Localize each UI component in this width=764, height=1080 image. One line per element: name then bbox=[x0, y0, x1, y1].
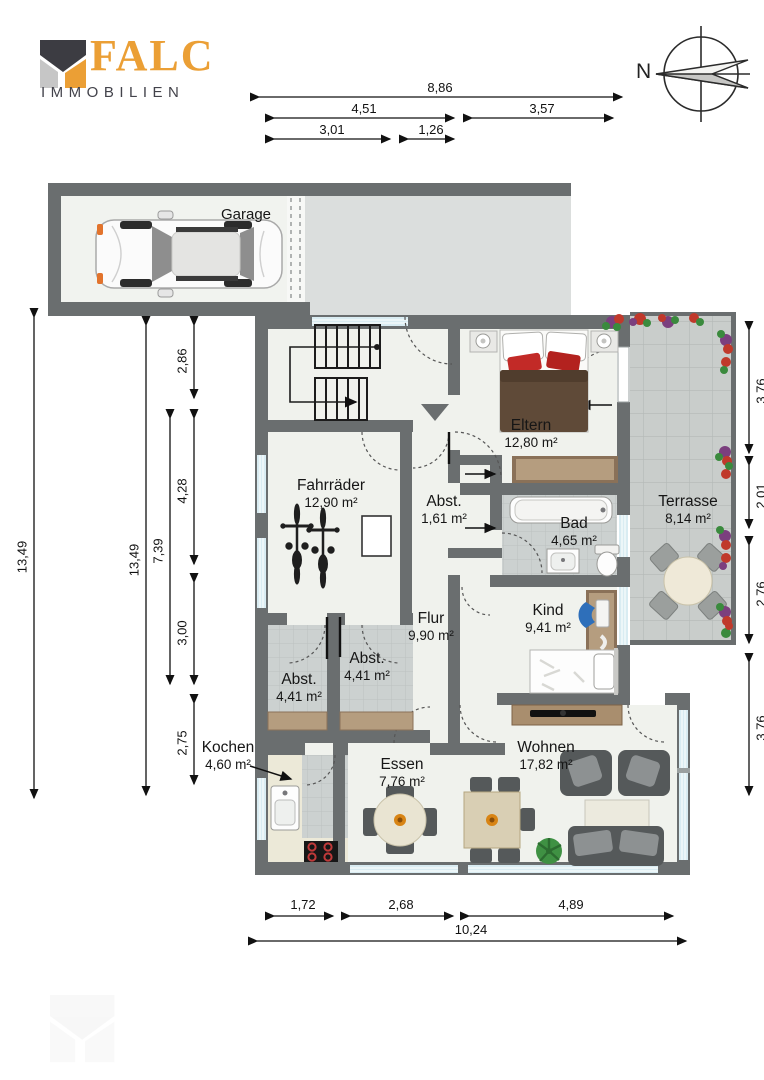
dim-left-sub4: 2,75 bbox=[175, 730, 190, 755]
abst-shelves bbox=[268, 712, 413, 730]
storage-box bbox=[362, 516, 391, 556]
window-kind bbox=[619, 587, 628, 645]
room-label-wohnen: Wohnen 17,82 m² bbox=[517, 739, 574, 772]
dim-top-sub1: 3,01 bbox=[319, 122, 344, 137]
window-wohnen-bottom bbox=[468, 865, 658, 873]
room-label-flur: Flur 9,90 m² bbox=[408, 610, 454, 643]
window-essen-bottom bbox=[350, 865, 458, 873]
dim-top-sub2: 1,26 bbox=[418, 122, 443, 137]
dim-left-sub2: 4,28 bbox=[175, 478, 190, 503]
room-label-terrasse: Terrasse 8,14 m² bbox=[658, 493, 717, 526]
dim-left-mid: 7,39 bbox=[151, 538, 166, 563]
compass-north-label: N bbox=[636, 60, 651, 84]
window-left-3 bbox=[257, 778, 266, 840]
room-label-abst-klein: Abst. 1,61 m² bbox=[421, 493, 467, 526]
dim-left-sub1: 2,86 bbox=[175, 348, 190, 373]
room-label-bad: Bad 4,65 m² bbox=[551, 515, 597, 548]
window-left-1 bbox=[257, 455, 266, 513]
dim-bottom-1: 1,72 bbox=[290, 897, 315, 912]
watermark bbox=[50, 995, 114, 1062]
plant-icon bbox=[536, 838, 562, 864]
car-icon bbox=[96, 211, 282, 297]
window-left-2 bbox=[257, 538, 266, 608]
dim-right-2: 2,01 bbox=[754, 483, 764, 508]
room-label-abst-rechts: Abst. 4,41 m² bbox=[344, 650, 390, 683]
dim-left-inner: 13,49 bbox=[127, 544, 142, 577]
room-label-kind: Kind 9,41 m² bbox=[525, 602, 571, 635]
dim-right-4: 3,76 bbox=[754, 715, 764, 740]
floorplan-page: FALC IMMOBILIEN N Garage Eltern 12,80 m²… bbox=[0, 0, 764, 1080]
room-label-kochen: Kochen 4,60 m² bbox=[202, 739, 255, 772]
dim-top-total: 8,86 bbox=[427, 80, 452, 95]
brand-logo-icon bbox=[40, 40, 86, 88]
room-label-eltern: Eltern 12,80 m² bbox=[504, 417, 557, 450]
dim-left-sub3: 3,00 bbox=[175, 620, 190, 645]
driveway-floor bbox=[287, 196, 571, 315]
dim-top-left: 4,51 bbox=[351, 101, 376, 116]
floorplan-drawing bbox=[0, 0, 764, 1080]
window-bad bbox=[619, 515, 628, 557]
brand-subtitle: IMMOBILIEN bbox=[41, 84, 184, 101]
dim-left-outer: 13,49 bbox=[15, 541, 30, 574]
room-label-fahrraeder: Fahrräder 12,90 m² bbox=[297, 477, 365, 510]
dim-right-1: 3,76 bbox=[754, 378, 764, 403]
dim-right-3: 2,76 bbox=[754, 581, 764, 606]
room-label-essen: Essen 7,76 m² bbox=[379, 756, 425, 789]
dim-bottom-3: 4,89 bbox=[558, 897, 583, 912]
dim-bottom-total: 10,24 bbox=[455, 922, 488, 937]
compass-icon bbox=[656, 26, 750, 122]
room-label-garage: Garage bbox=[221, 206, 271, 223]
room-label-abst-links: Abst. 4,41 m² bbox=[276, 671, 322, 704]
terrace-door bbox=[618, 347, 629, 402]
dim-bottom-2: 2,68 bbox=[388, 897, 413, 912]
garage-door bbox=[287, 196, 305, 302]
brand-name: FALC bbox=[90, 30, 215, 81]
dim-top-right: 3,57 bbox=[529, 101, 554, 116]
